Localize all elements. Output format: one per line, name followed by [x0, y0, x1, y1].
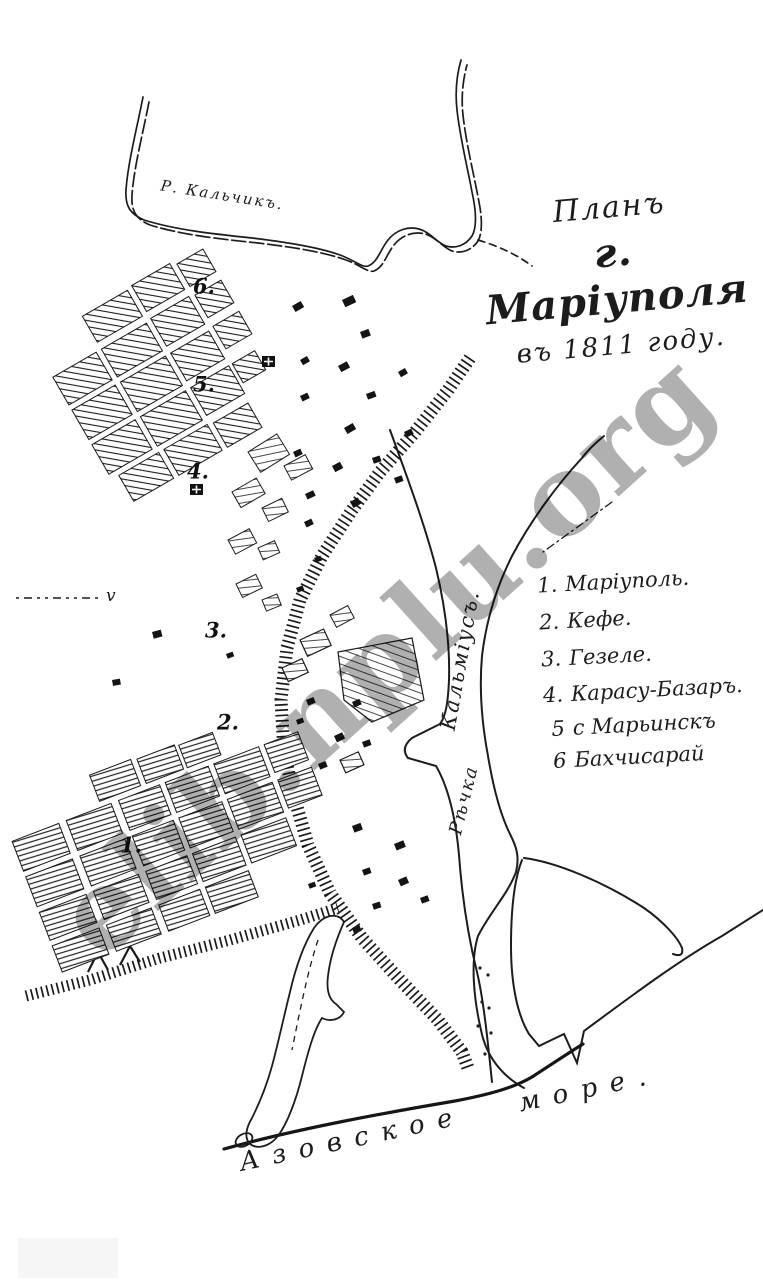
- middle-chain-blocks: [228, 434, 354, 627]
- quarter-number-6: 6.: [193, 274, 215, 299]
- upper-town-houses: [292, 295, 414, 508]
- legend-name: Гезеле.: [569, 642, 653, 670]
- legend-num: 6: [538, 748, 567, 773]
- scanned-map-page: Планъ г. Маріуполя въ 1811 году. 1. Марі…: [0, 0, 763, 1280]
- legend-num: 3.: [533, 646, 562, 671]
- legend-num: 5: [536, 716, 565, 741]
- map-title: Планъ г. Маріуполя въ 1811 году.: [463, 178, 763, 374]
- map-title-line2: г. Маріуполя: [466, 217, 763, 336]
- legend-num: 4.: [534, 682, 563, 707]
- quarter-number-4: 4.: [187, 459, 209, 484]
- upper-town-blocks: [33, 246, 295, 506]
- quarter-number-3: 3.: [205, 618, 227, 643]
- boundary-v-mark: v: [106, 586, 116, 606]
- scan-artifact: [18, 1238, 118, 1278]
- estuary-lagoon: [511, 858, 763, 1063]
- legend-name: Кефе.: [567, 606, 632, 633]
- legend-num: 2.: [531, 609, 560, 634]
- sand-spit: [233, 916, 344, 1150]
- quarter-number-5: 5.: [193, 372, 215, 397]
